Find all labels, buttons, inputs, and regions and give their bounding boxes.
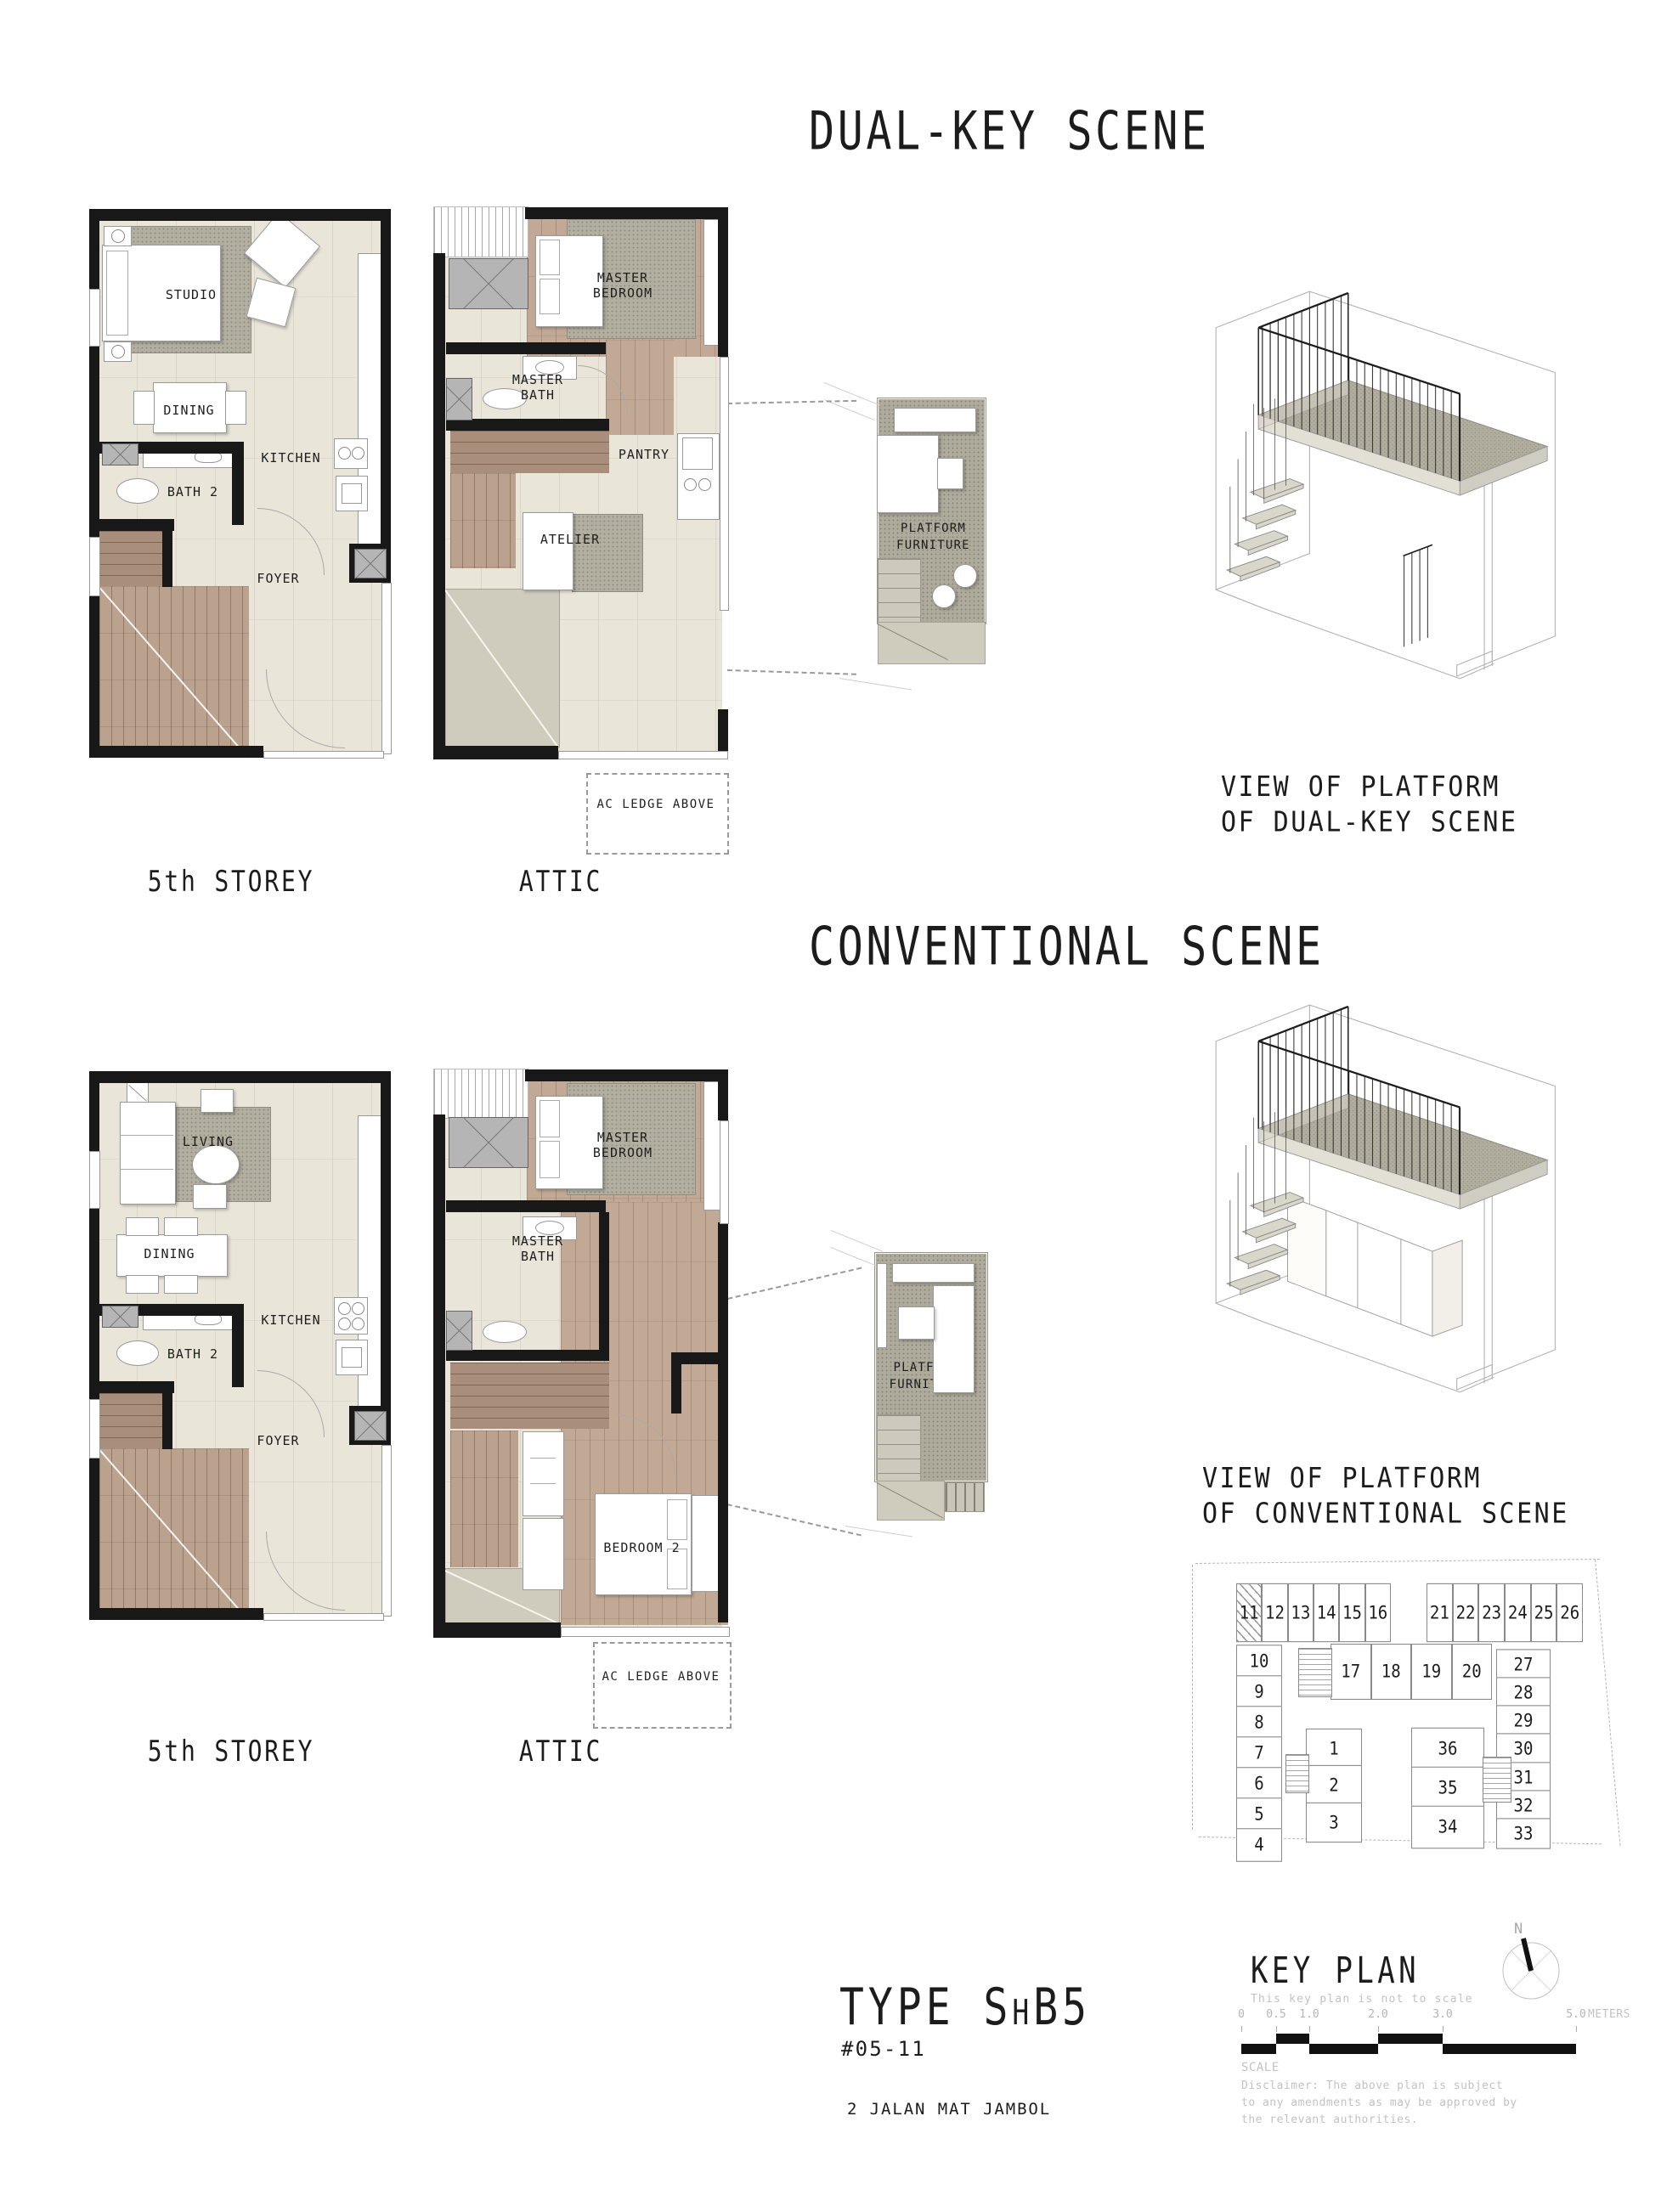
caption-line: OF CONVENTIONAL SCENE	[1202, 1497, 1569, 1532]
lamp-icon	[111, 345, 125, 358]
room-label-bath2: BATH 2	[150, 1346, 235, 1362]
scale-tick	[1443, 2026, 1444, 2032]
keyplan-unit: 4	[1236, 1828, 1282, 1862]
ac-riser	[354, 1411, 387, 1441]
scale-tick-label: 5.0	[1566, 2008, 1585, 2021]
platform-shelf	[892, 1263, 975, 1283]
unit-number: #05-11	[841, 2037, 926, 2061]
platform-furniture-label: PLATFORM FURNITURE	[889, 520, 978, 554]
room-label-dining: DINING	[144, 403, 234, 418]
scale-label: SCALE	[1241, 2061, 1280, 2074]
keyplan-unit: 1	[1306, 1729, 1362, 1769]
wall	[381, 1071, 391, 1431]
label-5th-storey-dual: 5th STOREY	[127, 865, 335, 899]
keyplan-unit: 33	[1496, 1818, 1551, 1848]
shower	[102, 1306, 138, 1328]
shower	[102, 443, 138, 466]
window	[89, 1399, 100, 1459]
entry-threshold	[263, 751, 384, 759]
label-attic-conv: ATTIC	[476, 1735, 646, 1769]
kitchen-sink	[336, 476, 368, 511]
keyplan-unit: 25	[1531, 1583, 1557, 1642]
unit-type: TYPE SHB5	[839, 1978, 1091, 2037]
keyplan-unit: 36	[1411, 1728, 1484, 1771]
isometric-view-conventional	[1175, 984, 1624, 1456]
wall	[718, 207, 728, 357]
room-label-kitchen: KITCHEN	[255, 1312, 327, 1328]
stool	[193, 1184, 227, 1209]
window	[89, 1151, 100, 1209]
ac-ledge-label: AC LEDGE ABOVE	[596, 1669, 726, 1684]
burner-icon	[338, 447, 351, 460]
wall	[718, 1222, 728, 1622]
window	[720, 1120, 729, 1224]
keyplan-unit: 17	[1331, 1644, 1371, 1700]
platform-ledge	[877, 1263, 887, 1348]
page-title-conventional: CONVENTIONAL SCENE	[809, 916, 1325, 978]
wall	[89, 209, 382, 221]
keyplan-block-b: 36 35 34	[1411, 1730, 1484, 1847]
stool	[932, 584, 956, 608]
room-label-bedroom2: BEDROOM 2	[585, 1540, 699, 1555]
ghost-line	[824, 399, 875, 420]
window	[720, 357, 729, 611]
ac-ledge-box	[449, 258, 528, 309]
pillow	[540, 1141, 560, 1178]
site-boundary	[1192, 1565, 1193, 1830]
platform-bed	[877, 435, 939, 513]
stairs-strip	[450, 1363, 609, 1429]
platform-table	[898, 1306, 935, 1340]
lamp-icon	[111, 229, 125, 243]
cushion-line	[121, 1169, 173, 1170]
sofa	[120, 1102, 176, 1205]
coffee-table	[192, 1145, 240, 1184]
site-boundary	[1195, 1559, 1600, 1564]
keyplan-block-a: 1 2 3	[1306, 1730, 1362, 1841]
disclaimer-line: Disclaimer: The above plan is subject	[1241, 2078, 1517, 2095]
stairs-lower	[450, 473, 516, 568]
keyplan-unit-highlighted: 11	[1236, 1583, 1262, 1642]
keyplan-unit: 19	[1411, 1644, 1452, 1700]
platform-detail-dual-key: PLATFORM FURNITURE	[856, 392, 992, 673]
key-plan: 11 12 13 14 15 16 21 22 23 24 25 26 10 9…	[1211, 1553, 1619, 1850]
wall	[381, 209, 391, 569]
toilet	[483, 1321, 527, 1343]
stair-core	[1483, 1757, 1511, 1803]
keyplan-unit: 21	[1427, 1583, 1453, 1642]
label-attic-dual: ATTIC	[476, 865, 646, 899]
keyplan-unit: 35	[1411, 1767, 1484, 1810]
wall	[162, 1393, 172, 1449]
stove	[334, 1297, 368, 1335]
keyplan-unit: 13	[1288, 1583, 1314, 1642]
scale-tick-label: 2.0	[1368, 2008, 1387, 2021]
plant-leaf	[128, 1085, 146, 1101]
wall	[671, 1364, 681, 1414]
scale-tick-label: 0	[1238, 2008, 1245, 2021]
stove	[334, 438, 368, 469]
keyplan-unit: 6	[1236, 1767, 1282, 1801]
caption-line: VIEW OF PLATFORM	[1221, 770, 1518, 805]
burner-icon	[352, 1318, 364, 1330]
ground-railing	[1404, 545, 1432, 646]
scale-tick	[1576, 2026, 1577, 2032]
scale-tick	[1241, 2026, 1242, 2032]
ac-threshold	[558, 751, 728, 759]
keyplan-unit: 16	[1365, 1583, 1391, 1642]
keyplan-unit: 20	[1452, 1644, 1493, 1700]
burner-icon	[352, 1302, 364, 1315]
chair	[164, 1275, 198, 1294]
keyplan-unit: 7	[1236, 1736, 1282, 1770]
stairs-upper	[99, 1393, 164, 1448]
keyplan-unit: 28	[1496, 1677, 1551, 1707]
stool	[953, 564, 977, 588]
scale-tick	[1276, 2026, 1277, 2032]
ghost-line	[839, 678, 912, 690]
platform-detail-conventional: PLATFORM FURNITURE	[861, 1239, 986, 1521]
wall	[89, 1207, 99, 1399]
keyplan-unit: 24	[1505, 1583, 1531, 1642]
platform-bed	[933, 1285, 975, 1393]
caption-line: VIEW OF PLATFORM	[1202, 1461, 1569, 1497]
room-label-living: LIVING	[166, 1134, 251, 1149]
wall	[89, 345, 99, 537]
keyplan-row-top-left: 11 12 13 14 15 16	[1236, 1586, 1391, 1639]
keyplan-unit: 15	[1339, 1583, 1364, 1642]
shelf-line	[530, 1483, 556, 1484]
site-boundary	[1595, 1560, 1620, 1846]
stair-core	[1298, 1648, 1332, 1697]
wall	[162, 531, 172, 587]
unit-address: 2 JALAN MAT JAMBOL	[847, 2100, 1051, 2119]
disclaimer-line: the relevant authorities.	[1241, 2112, 1517, 2129]
plan-dualkey-5th-storey: STUDIO KITCHEN DINING BATH 2 FOYER	[89, 204, 391, 773]
window	[89, 537, 100, 596]
keyplan-unit: 12	[1262, 1583, 1287, 1642]
room-label-master-bedroom: MASTER BEDROOM	[571, 270, 675, 301]
scale-tick-label: 1.0	[1299, 2008, 1319, 2021]
unit-type-small-h: H	[1012, 1991, 1033, 2033]
keyplan-row-mid: 17 18 19 20	[1331, 1646, 1492, 1697]
unit-type-suffix: B5	[1033, 1978, 1091, 2037]
keyplan-unit: 34	[1411, 1806, 1484, 1849]
wall	[446, 1350, 609, 1361]
chair	[164, 1217, 198, 1236]
callout-line	[727, 669, 856, 675]
scale-segment	[1443, 2044, 1576, 2054]
wall	[718, 1069, 728, 1120]
burner-icon	[352, 447, 364, 460]
wall	[433, 1114, 445, 1622]
shower	[446, 378, 472, 420]
chair	[126, 1217, 159, 1236]
keyplan-unit: 5	[1236, 1797, 1282, 1831]
keyplan-unit: 22	[1453, 1583, 1479, 1642]
pillow	[540, 240, 560, 275]
ac-riser	[354, 549, 387, 578]
room-label-dining: DINING	[125, 1246, 214, 1261]
burner-icon	[338, 1302, 351, 1315]
pillow	[540, 1100, 560, 1137]
entry-threshold	[263, 1613, 384, 1621]
plan-dualkey-attic: MASTER BEDROOM MASTER BATH PANTRY ATELIE…	[433, 204, 729, 858]
window	[381, 1445, 392, 1617]
closet	[523, 1431, 564, 1516]
callout-line	[727, 1267, 862, 1300]
kitchen-sink	[336, 1340, 368, 1375]
pillow	[106, 251, 128, 336]
roof-hatch	[433, 206, 528, 257]
keyplan-unit: 26	[1557, 1583, 1583, 1642]
wall	[433, 746, 558, 759]
ghost-line	[845, 1526, 912, 1538]
callout-line	[727, 1504, 862, 1536]
plant-table	[127, 1082, 149, 1103]
platform-landing	[878, 622, 986, 664]
ac-ledge-outline	[586, 773, 729, 855]
scale-segment	[1309, 2044, 1378, 2054]
wall	[89, 209, 99, 289]
keyplan-unit: 9	[1236, 1675, 1282, 1709]
wall	[446, 1200, 606, 1212]
keyplan-row-top-right: 21 22 23 24 25 26	[1427, 1586, 1583, 1639]
platform-shelf	[894, 408, 976, 432]
ac-ledge-outline	[593, 1642, 732, 1729]
side-table	[104, 226, 132, 246]
shower	[446, 1311, 472, 1351]
room-label-master-bedroom: MASTER BEDROOM	[571, 1130, 675, 1160]
pillow	[667, 1499, 687, 1540]
north-compass: N	[1489, 1918, 1573, 2007]
keyplan-unit: 2	[1306, 1765, 1362, 1806]
stool	[201, 1089, 234, 1113]
pantry-counter	[677, 433, 720, 520]
caption-conventional-view: VIEW OF PLATFORM OF CONVENTIONAL SCENE	[1202, 1461, 1569, 1532]
under-platform-walls	[1287, 1196, 1462, 1336]
room-label-master-bath: MASTER BATH	[500, 372, 576, 403]
kitchen-counter	[358, 1115, 382, 1430]
wall	[525, 207, 728, 219]
ac-threshold	[561, 1627, 730, 1637]
disclaimer-line: to any amendments as may be approved by	[1241, 2095, 1517, 2112]
isometric-view-dual-key	[1175, 270, 1624, 742]
atelier-desk	[523, 512, 573, 590]
wall	[89, 519, 174, 531]
scale-tick-label: 3.0	[1432, 2008, 1452, 2021]
wall	[446, 419, 609, 431]
balcony-fringe	[945, 1482, 985, 1512]
platform-table	[937, 458, 963, 489]
keyplan-subtitle: This key plan is not to scale	[1251, 1993, 1473, 2006]
kitchen-counter	[358, 253, 382, 567]
window	[381, 583, 392, 754]
scale-tick	[1378, 2026, 1379, 2032]
scale-tick-label: 0.5	[1266, 2008, 1285, 2021]
ac-ledge-label: AC LEDGE ABOVE	[591, 797, 720, 812]
wall	[89, 1457, 99, 1620]
room-label-pantry: PANTRY	[613, 447, 675, 462]
wall	[89, 1071, 99, 1151]
floating-stairs	[1227, 479, 1303, 581]
wall	[89, 595, 99, 758]
scale-tick	[1309, 2026, 1310, 2032]
stairs-lower	[450, 1430, 518, 1567]
shelf-line	[530, 1458, 556, 1459]
page-title-dual-key: DUAL-KEY SCENE	[809, 100, 1210, 162]
closet	[523, 1518, 564, 1590]
keyplan-unit: 29	[1496, 1706, 1551, 1736]
keyplan-title: KEY PLAN	[1251, 1950, 1420, 1992]
sink-basin	[342, 1347, 362, 1368]
platform-steps	[878, 558, 921, 632]
scale-bar: 0 0.5 1.0 2.0 3.0 5.0 METERS SCALE	[1241, 2008, 1632, 2076]
atelier-rug	[572, 514, 643, 592]
label-5th-storey-conv: 5th STOREY	[127, 1735, 335, 1769]
stairs-upper	[99, 531, 164, 586]
burner-icon	[338, 1318, 351, 1330]
stairs-strip	[450, 431, 609, 473]
burner-icon	[684, 478, 697, 491]
burner-icon	[698, 478, 711, 491]
ac-ledge-box	[449, 1117, 528, 1168]
room-label-atelier: ATELIER	[528, 532, 612, 547]
scale-segment	[1378, 2034, 1443, 2044]
room-label-studio: STUDIO	[149, 287, 234, 302]
wall	[446, 342, 606, 354]
keyplan-unit: 18	[1371, 1644, 1412, 1700]
keyplan-col-left: 10 9 8 7 6 5 4	[1236, 1646, 1282, 1860]
room-label-foyer: FOYER	[238, 571, 319, 586]
sink-basin	[342, 483, 362, 504]
disclaimer: Disclaimer: The above plan is subject to…	[1241, 2078, 1517, 2129]
plan-conventional-attic: MASTER BEDROOM MASTER BATH BEDROOM 2	[433, 1066, 729, 1729]
room-label-kitchen: KITCHEN	[255, 450, 327, 466]
wall	[89, 1381, 174, 1393]
scale-segment	[1241, 2044, 1276, 2054]
plan-conventional-5th-storey: LIVING DINING KITCHEN BATH 2 FOYER	[89, 1066, 391, 1635]
wall	[525, 1069, 728, 1081]
wall	[433, 253, 445, 644]
ghost-line	[831, 1230, 884, 1252]
keyplan-unit: 8	[1236, 1706, 1282, 1740]
stair-core	[1285, 1754, 1309, 1793]
scale-segment	[1276, 2034, 1309, 2044]
ghost-line	[831, 1247, 877, 1267]
room-label-bath2: BATH 2	[150, 484, 235, 499]
wall	[599, 1212, 609, 1361]
wall	[89, 746, 263, 758]
wall	[89, 1071, 382, 1083]
unit-type-prefix: TYPE S	[839, 1978, 1012, 2037]
keyplan-col-right: 27 28 29 30 31 32 33	[1496, 1651, 1551, 1848]
room-label-foyer: FOYER	[238, 1433, 319, 1448]
roof-hatch	[433, 1069, 528, 1119]
side-table	[104, 341, 132, 362]
wall	[433, 1622, 561, 1638]
wall	[433, 637, 445, 758]
caption-line: OF DUAL-KEY SCENE	[1221, 805, 1518, 841]
window	[89, 289, 100, 347]
caption-dual-view: VIEW OF PLATFORM OF DUAL-KEY SCENE	[1221, 770, 1518, 841]
room-label-master-bath: MASTER BATH	[500, 1233, 576, 1264]
floorplan-sheet: DUAL-KEY SCENE CONVENTIONAL SCENE STUDIO	[0, 0, 1678, 2212]
keyplan-unit: 23	[1478, 1583, 1505, 1642]
pillow	[540, 279, 560, 314]
platform-steps	[877, 1414, 921, 1482]
wall	[89, 1608, 263, 1620]
keyplan-unit: 3	[1306, 1802, 1362, 1842]
chair	[126, 1275, 159, 1294]
sink-basin	[682, 437, 713, 470]
keyplan-unit: 10	[1236, 1645, 1282, 1679]
scale-unit-label: METERS	[1588, 2008, 1630, 2021]
north-label: N	[1514, 1921, 1523, 1938]
keyplan-unit: 14	[1314, 1583, 1339, 1642]
keyplan-unit: 27	[1496, 1649, 1551, 1679]
